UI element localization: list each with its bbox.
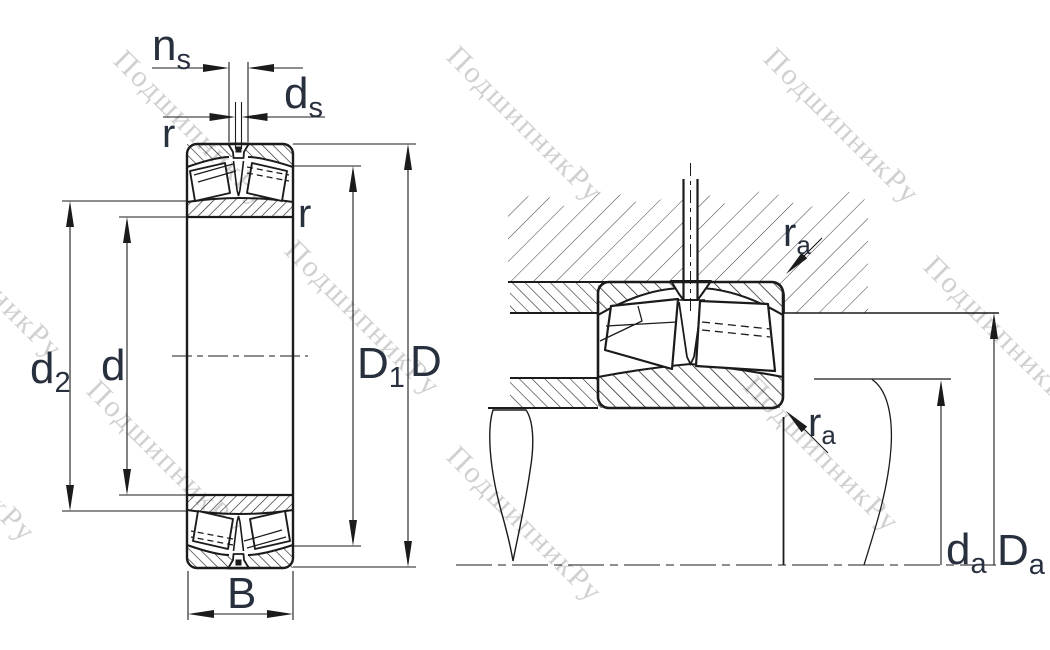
label-ds: ds: [284, 69, 323, 124]
roller: [250, 511, 290, 549]
label-B: B: [227, 569, 256, 618]
label-Da: Da: [997, 526, 1046, 581]
arrowhead: [203, 64, 229, 72]
label-d: d: [101, 341, 125, 390]
inner-ring-abutment-section: [510, 378, 598, 408]
arrowhead: [242, 113, 268, 121]
label-ns: ns: [152, 21, 191, 76]
label-ra-shaft: ra: [808, 401, 836, 450]
label-D: D: [410, 337, 442, 386]
bearing-front-section-view: [172, 144, 308, 569]
lubrication-hole-top: [236, 147, 242, 153]
arrowhead: [66, 201, 74, 227]
label-r-outer: r: [162, 112, 175, 156]
label-d2: d2: [30, 344, 71, 399]
label-r-inner: r: [298, 192, 311, 236]
arrowhead: [248, 64, 274, 72]
watermark-text: ПодшипникРу: [0, 197, 70, 366]
arrowhead: [349, 166, 357, 192]
roller: [193, 511, 233, 549]
arrowhead: [210, 113, 236, 121]
watermark-text: ПодшипникРу: [757, 42, 926, 211]
watermark-layer: ПодшипникРу ПодшипникРу ПодшипникРу Подш…: [0, 40, 1050, 609]
arrowhead: [123, 469, 131, 495]
arrowhead: [66, 485, 74, 511]
arrowhead: [404, 541, 412, 567]
bearing-mounting-view: [456, 163, 999, 565]
arrowhead: [404, 144, 412, 170]
watermark-text: ПодшипникРу: [917, 250, 1050, 419]
lubrication-hole-bottom: [236, 560, 242, 566]
watermark-text: ПодшипникРу: [440, 440, 609, 609]
label-da: da: [946, 525, 987, 580]
extension-lines: [229, 62, 248, 149]
arrowhead: [349, 520, 357, 546]
arrowhead: [267, 610, 293, 618]
bearing-drawing-page: ПодшипникРу ПодшипникРу ПодшипникРу Подш…: [0, 0, 1050, 650]
watermark-text: ПодшипникРу: [0, 380, 43, 549]
shaft-shoulder-profile: [864, 380, 891, 566]
outer-ring-abutment-section: [510, 282, 598, 313]
bearing-drawing: ПодшипникРу ПодшипникРу ПодшипникРу Подш…: [0, 0, 1050, 650]
watermark-text: ПодшипникРу: [440, 40, 609, 209]
arrowhead: [123, 217, 131, 243]
arrowhead: [188, 610, 214, 618]
arrowhead: [937, 380, 945, 406]
roller: [696, 301, 775, 371]
roller: [190, 163, 230, 201]
roller: [247, 163, 287, 201]
